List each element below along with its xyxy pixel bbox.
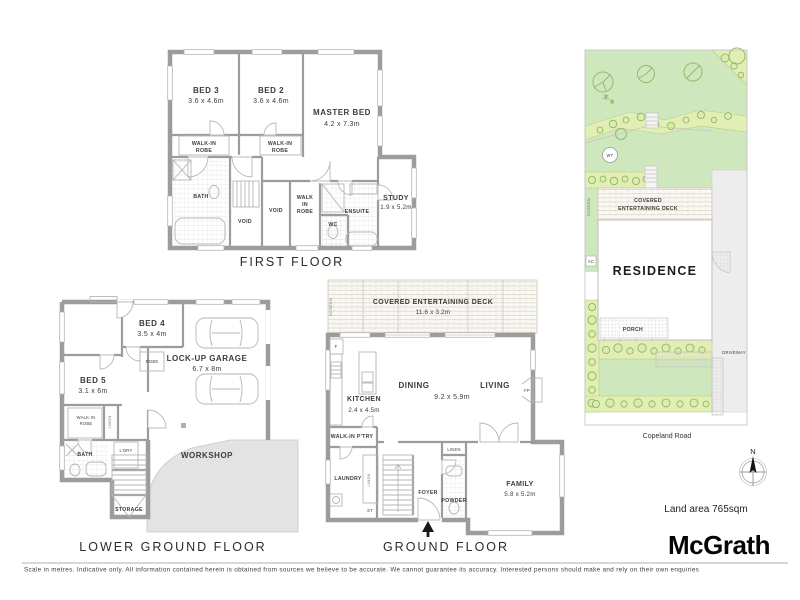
bed5-label: BED 5: [80, 376, 106, 385]
storage-label: STORAGE: [115, 507, 143, 513]
residence-label: RESIDENCE: [613, 264, 698, 278]
north-label: N: [750, 447, 755, 456]
gf-linen2-label: LINEN: [366, 474, 371, 487]
bath-label: BATH: [193, 194, 208, 200]
study-dims: 1.9 x 5.2m: [380, 204, 411, 211]
gf-st-label: ST: [367, 508, 373, 513]
wc-tiles: [322, 215, 344, 246]
bed2-robe-label-1: WALK-IN: [268, 141, 292, 147]
lower-ground-title: LOWER GROUND FLOOR: [79, 540, 266, 554]
compass: N: [740, 447, 767, 486]
foyer-label: FOYER: [418, 490, 437, 496]
first-floor-title: FIRST FLOOR: [240, 255, 344, 269]
garage-label: LOCK-UP GARAGE: [167, 354, 248, 363]
road-label: Copeland Road: [643, 433, 692, 440]
fridge-label: F: [335, 344, 338, 349]
bed4-dims: 3.5 x 4m: [137, 331, 166, 338]
front-path: [656, 352, 712, 367]
master-bed-label: MASTER BED: [313, 108, 371, 117]
floorplan-svg: BED 3 3.6 x 4.6m BED 2 3.6 x 4.6m MASTER…: [0, 0, 800, 600]
floorplan-page: BED 3 3.6 x 4.6m BED 2 3.6 x 4.6m MASTER…: [0, 0, 800, 600]
lg-bath-label: BATH: [77, 452, 92, 458]
ldry-label: L'DRY: [120, 448, 133, 453]
disclaimer-text: Scale in metres. Indicative only. All in…: [24, 567, 699, 574]
site-deck-label-1: COVERED: [634, 198, 662, 204]
entry-arrow: [422, 521, 434, 537]
living-label: LIVING: [480, 381, 510, 390]
workshop-label: WORKSHOP: [181, 451, 233, 460]
lg-wir-label-2: ROBE: [80, 421, 93, 426]
bed3-robe-label-1: WALK-IN: [192, 141, 216, 147]
driveway-path: [712, 358, 723, 415]
ground-floor-title: GROUND FLOOR: [383, 540, 509, 554]
lower-ground-floor-plan: BED 4 3.5 x 4m BED 5 3.1 x 6m LOCK-UP GA…: [60, 297, 298, 555]
void1-label: VOID: [238, 219, 252, 225]
gf-deck-dims: 11.6 x 3.2m: [416, 309, 451, 316]
dining-label: DINING: [399, 381, 430, 390]
bed2-robe-label-2: ROBE: [272, 148, 288, 154]
powder-label: POWDER: [441, 498, 466, 504]
family-dims: 5.8 x 5.2m: [504, 491, 535, 498]
ensuite-label: ENSUITE: [345, 209, 370, 215]
study-label: STUDY: [383, 195, 409, 202]
porch-label: PORCH: [623, 327, 643, 333]
kitchen-dims: 2.4 x 4.5m: [348, 407, 379, 414]
bed3-label: BED 3: [193, 86, 219, 95]
pantry-label: WALK-IN P'TRY: [331, 434, 374, 440]
wir-label-3: ROBE: [297, 209, 313, 215]
gf-deck-label: COVERED ENTERTAINING DECK: [373, 299, 493, 306]
gf-screen-label: SCREEN: [328, 298, 333, 316]
site-plan: WT COVERED ENTERTAINING DECK RESIDENCE P…: [585, 48, 747, 440]
bed2-label: BED 2: [258, 86, 284, 95]
garage-dims: 6.7 x 8m: [192, 366, 221, 373]
ground-floor-plan: COVERED ENTERTAINING DECK 11.6 x 3.2m SC…: [326, 280, 565, 554]
gf-deck: [328, 280, 537, 333]
bed3-robe-label-2: ROBE: [196, 148, 212, 154]
agency-logo: McGrath: [668, 530, 770, 560]
land-area-label: Land area 765sqm: [664, 504, 747, 515]
robe-label: ROBE: [146, 359, 159, 364]
bed5-dims: 3.1 x 6m: [78, 388, 107, 395]
master-bed-dims: 4.2 x 7.3m: [324, 121, 360, 128]
laundry-label: LAUNDRY: [334, 476, 362, 482]
ac-label: AC: [588, 259, 594, 264]
family-label: FAMILY: [506, 481, 533, 488]
living-dining-dims: 9.2 x 5.9m: [434, 394, 470, 401]
first-floor-plan: BED 3 3.6 x 4.6m BED 2 3.6 x 4.6m MASTER…: [168, 50, 417, 269]
bed2-dims: 3.6 x 4.6m: [253, 98, 289, 105]
site-deck: [598, 188, 712, 220]
driveway-label: DRIVEWAY: [722, 350, 745, 355]
kitchen-label: KITCHEN: [347, 396, 381, 403]
screen-label: SCREEN: [586, 198, 591, 216]
void2-label: VOID: [269, 208, 283, 214]
wir-label-1: WALK: [297, 195, 313, 201]
wir-label-2: IN: [302, 202, 308, 208]
bed4-label: BED 4: [139, 319, 165, 328]
lg-wir-label-1: WALK-IN: [77, 415, 96, 420]
gf-doors: [340, 416, 518, 520]
site-deck-label-2: ENTERTAINING DECK: [618, 206, 678, 212]
fp-label: FP: [524, 388, 530, 393]
lg-linen-label: LINEN: [107, 416, 112, 429]
water-tank-label: WT: [607, 153, 614, 158]
gf-linen1-label: LINEN: [447, 447, 460, 452]
bed3-dims: 3.6 x 4.6m: [188, 98, 224, 105]
wc-label: WC: [328, 222, 337, 228]
